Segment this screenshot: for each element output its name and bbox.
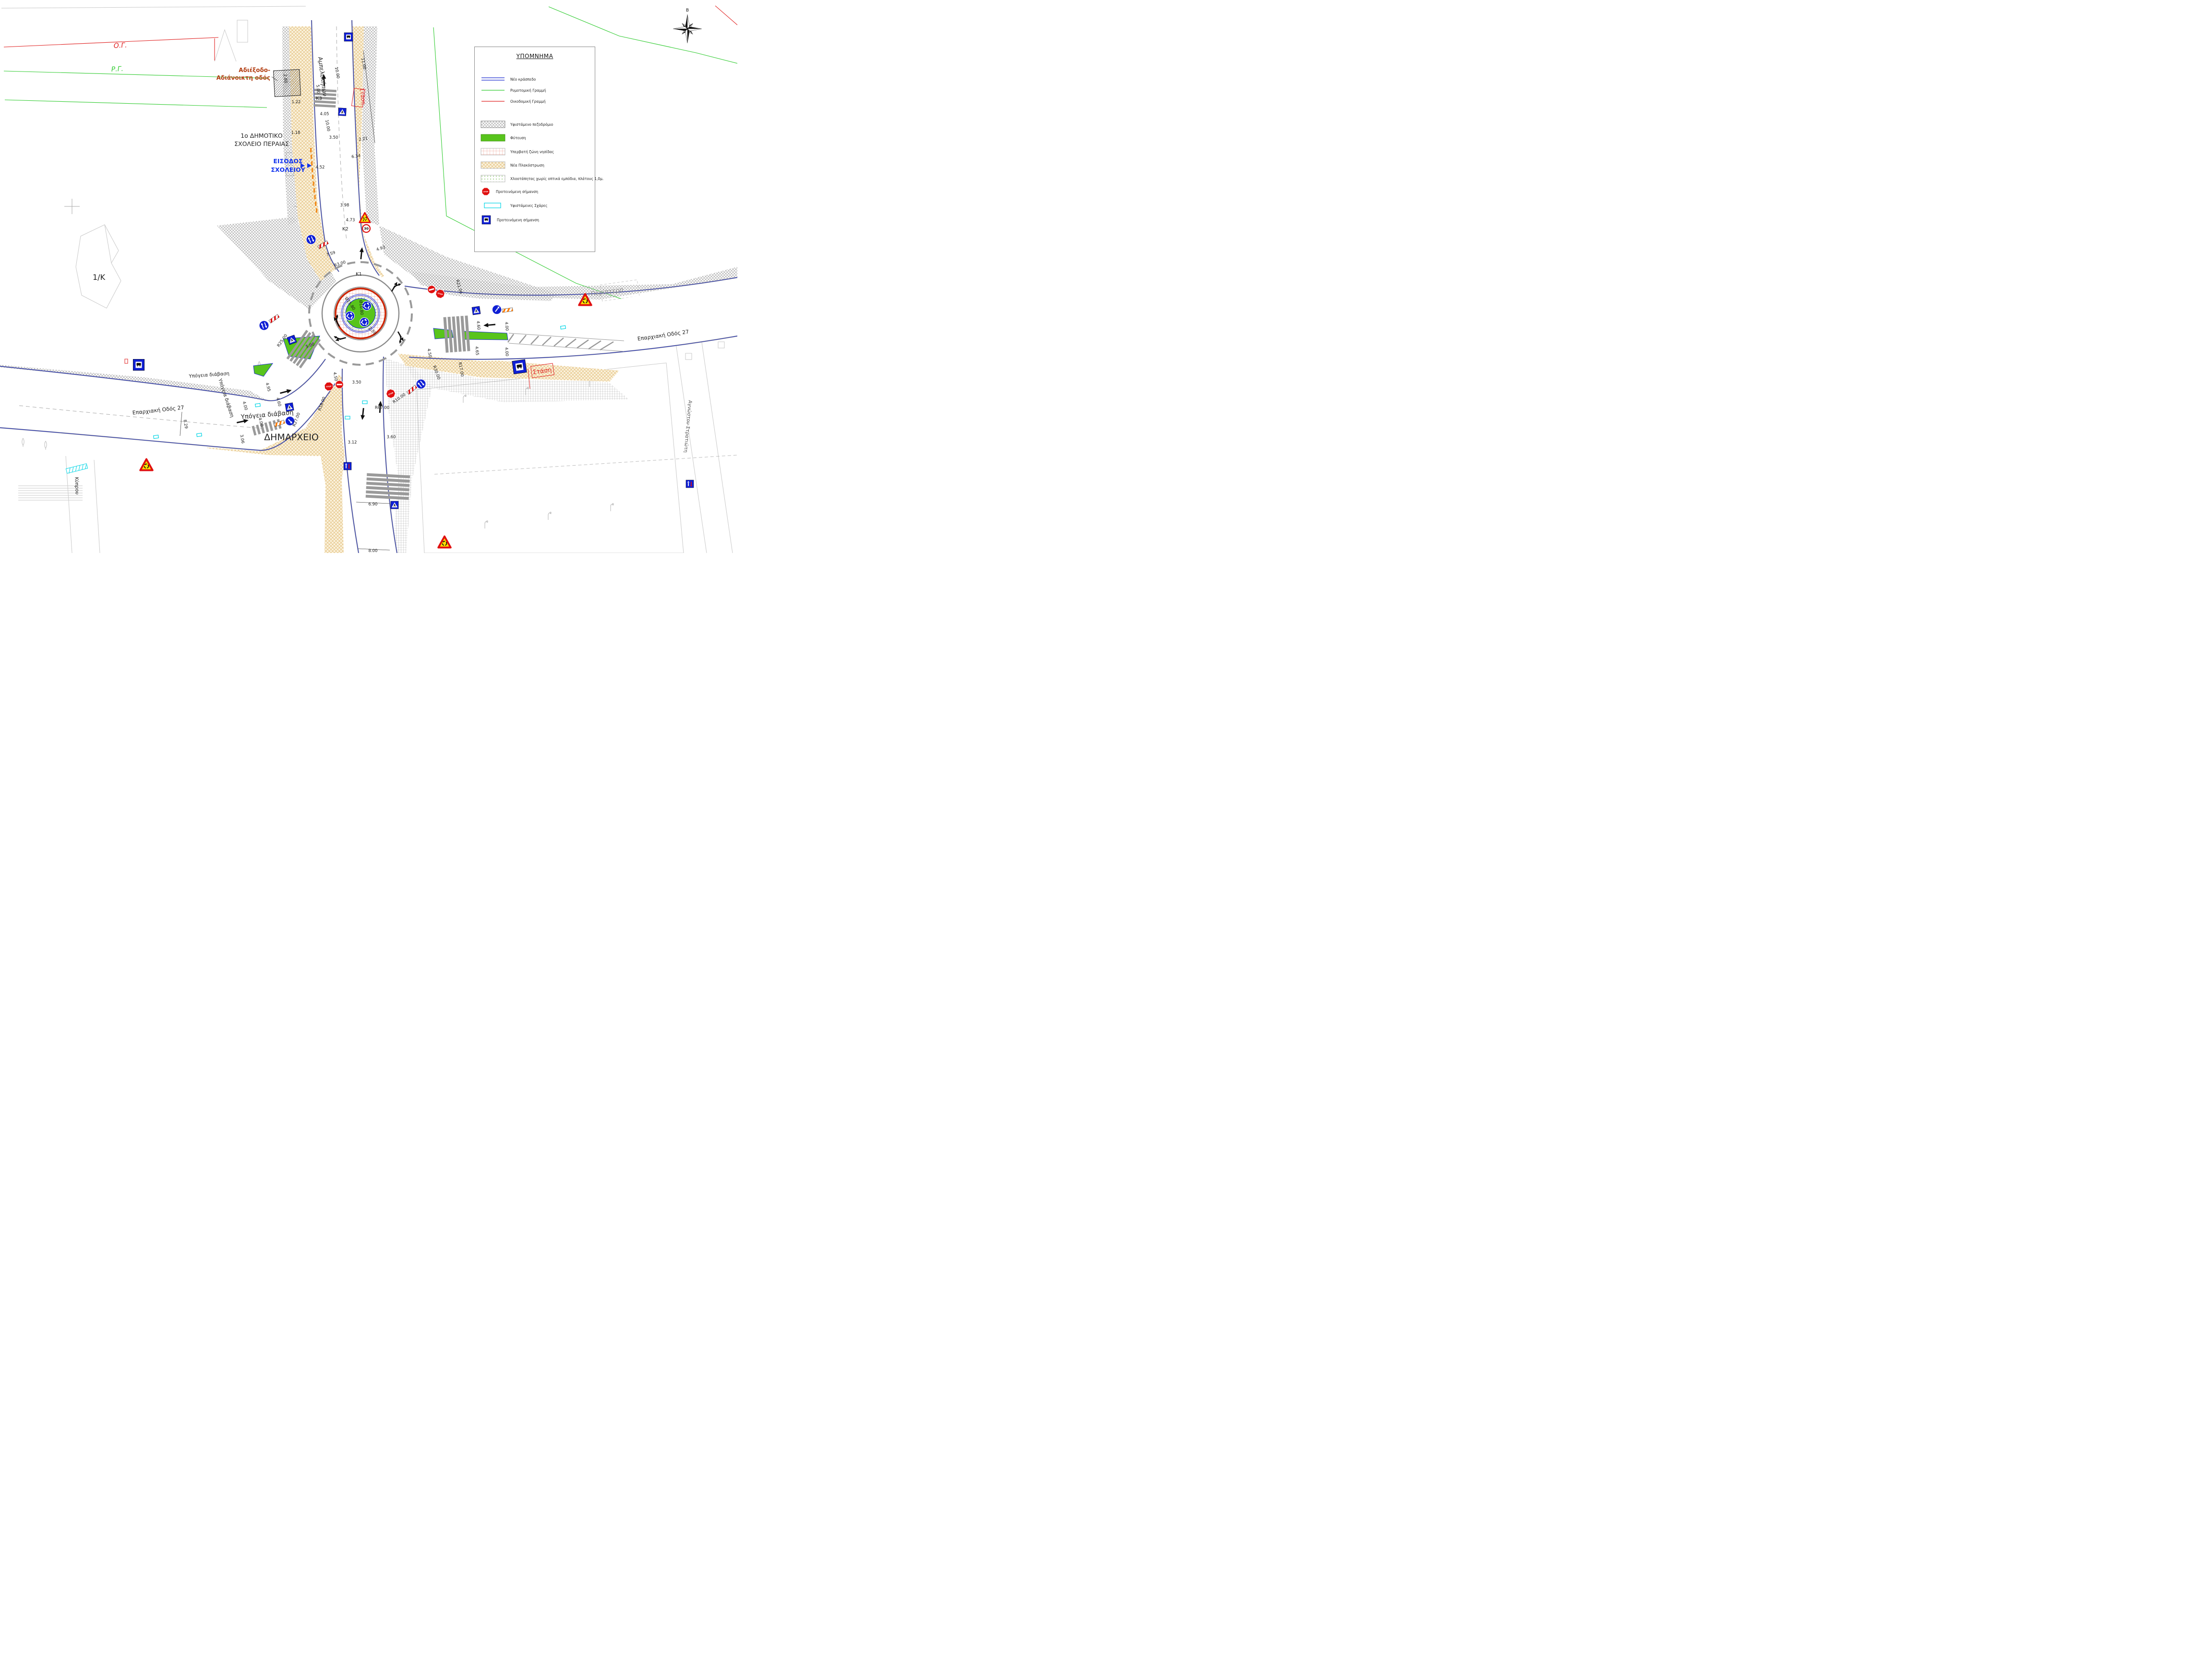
bus-stop-sign-icon (344, 33, 353, 41)
town-hall-label: ΔΗΜΑΡΧΕΙΟ (264, 432, 319, 443)
school-entrance-label-line2: ΣΧΟΛΕΙΟΥ (271, 166, 305, 173)
roundabout-plan-drawing: STOP 30 (0, 0, 737, 553)
legend-item-11: Προτεινόμενη σήμανση (481, 215, 593, 225)
dimension-label: 3.60 (387, 435, 396, 440)
legend-item-3: Οικοδομική Γραμμή (481, 96, 593, 107)
legend-label: Ρυμοτομική Γραμμή (510, 88, 546, 93)
priority-over-oncoming-sign-icon (344, 462, 351, 470)
legend-label: Οικοδομική Γραμμή (510, 99, 546, 104)
dimension-label: 6.90 (369, 502, 378, 507)
legend-box: ΥΠΟΜΝΗΜΑ Νέο κράσπεδοΡυμοτομική ΓραμμήΟι… (474, 47, 595, 252)
legend-item-9: Προτεινόμενη σήμανση (481, 186, 593, 197)
dimension-label: 4.05 (320, 112, 329, 117)
legend-label: Νέα Πλακόστρωση (510, 163, 544, 168)
legend-item-4: Υφιστάμενο πεζοδρόμιο (481, 119, 593, 130)
dimension-label: 4.65 (474, 346, 480, 356)
pedestrian-crossing-sign-icon (472, 306, 481, 315)
school-label-line1: 1ο ΔΗΜΟΤΙΚΟ (240, 132, 283, 139)
bus-stop-sign-icon (133, 359, 144, 370)
priority-over-oncoming-sign-icon (686, 480, 694, 488)
legend-item-8: Χλοοτάπητας χωρίς οπτικά εμπόδια, πλάτου… (481, 173, 593, 184)
site-plan-canvas: STOP 30 (0, 0, 737, 553)
dimension-label: 4.00 (504, 347, 509, 357)
legend-label: Υφιστάμενες Σχάρες (510, 204, 547, 208)
legend-swatch-crosshatch (481, 120, 505, 128)
dimension-label: 4.73 (346, 218, 355, 223)
dimension-label: 3.50 (352, 380, 361, 385)
legend-label: Προτεινόμενη σήμανση (497, 218, 539, 222)
legend-swatch-red-line (481, 97, 505, 105)
kyprou-label: Κύπρου (73, 477, 80, 494)
dimension-label: 1.22 (292, 100, 301, 105)
legend-item-1: Νέο κράσπεδο (481, 74, 593, 84)
dimension-label: 8.00 (369, 549, 378, 553)
dimension-label: 4.00 (504, 322, 509, 331)
legend-item-10: Υφιστάμενες Σχάρες (481, 200, 593, 211)
legend-swatch-island-grid (481, 148, 505, 156)
dimension-label: R67.00 (375, 406, 389, 410)
roundabout-mandatory-sign-icon (360, 318, 369, 327)
legend-swatch-green-line (481, 86, 505, 94)
legend-title: ΥΠΟΜΝΗΜΑ (475, 53, 595, 60)
school-entrance-label-line1: ΕΙΣΟΔΟΣ (273, 157, 302, 165)
dimension-label: 3.98 (340, 203, 349, 208)
legend-item-2: Ρυμοτομική Γραμμή (481, 85, 593, 96)
node-label-k1: K1 (356, 272, 362, 277)
compass-north-label: B (686, 8, 689, 13)
legend-swatch-sign-bus (481, 214, 492, 226)
node-label-k2: K2 (342, 227, 349, 232)
dead-end-label-line1: Αδιέξοδο- (239, 67, 270, 73)
legend-swatch-sign-stop (481, 186, 491, 197)
dimension-label: 3.50 (329, 135, 338, 140)
legend-item-5: Φύτευση (481, 132, 593, 143)
dimension-label: 5.00 (315, 84, 321, 94)
legend-item-6: Υπερβατή ζώνη νησίδας (481, 146, 593, 157)
legend-swatch-paving (481, 161, 505, 169)
dimension-label: 4.52 (316, 165, 325, 170)
dimension-label: 4.60 (475, 321, 481, 330)
pedestrian-crossing-sign-icon (338, 108, 347, 116)
block-label: 1/K (93, 273, 106, 282)
legend-item-7: Νέα Πλακόστρωση (481, 160, 593, 170)
keep-right-sign-icon (492, 305, 501, 314)
building-line-label: Ο.Γ. (113, 42, 127, 50)
street-plan-line-label: Ρ.Γ. (111, 65, 123, 73)
pedestrian-crossing-sign-icon (391, 501, 398, 509)
bus-stop-sign-icon (512, 360, 527, 374)
node-label-k3: K3 (316, 96, 322, 101)
legend-label: Υπερβατή ζώνη νησίδας (510, 150, 554, 154)
speed-limit-30-sign-icon (362, 225, 370, 232)
school-label-line2: ΣΧΟΛΕΙΟ ΠΕΡΑΙΑΣ (234, 140, 289, 147)
legend-label: Νέο κράσπεδο (510, 77, 536, 82)
legend-label: Φύτευση (510, 136, 526, 140)
dimension-label: 1.18 (291, 131, 301, 135)
legend-label: Προτεινόμενη σήμανση (496, 190, 538, 194)
legend-label: Υφιστάμενο πεζοδρόμιο (510, 122, 553, 127)
legend-swatch-grass-dots (481, 175, 505, 182)
dimension-label: 3.12 (348, 440, 357, 445)
legend-swatch-green-fill (481, 134, 505, 142)
dead-end-label-line2: Αδιάνοικτη οδός (216, 74, 270, 81)
no-entry-sign-icon (336, 381, 344, 389)
legend-swatch-curb (481, 75, 505, 83)
legend-label: Χλοοτάπητας χωρίς οπτικά εμπόδια, πλάτου… (510, 177, 603, 181)
dimension-label: 2.80 (282, 74, 288, 84)
legend-swatch-cyan-rect (481, 202, 505, 209)
roundabout-mandatory-sign-icon (346, 312, 355, 321)
